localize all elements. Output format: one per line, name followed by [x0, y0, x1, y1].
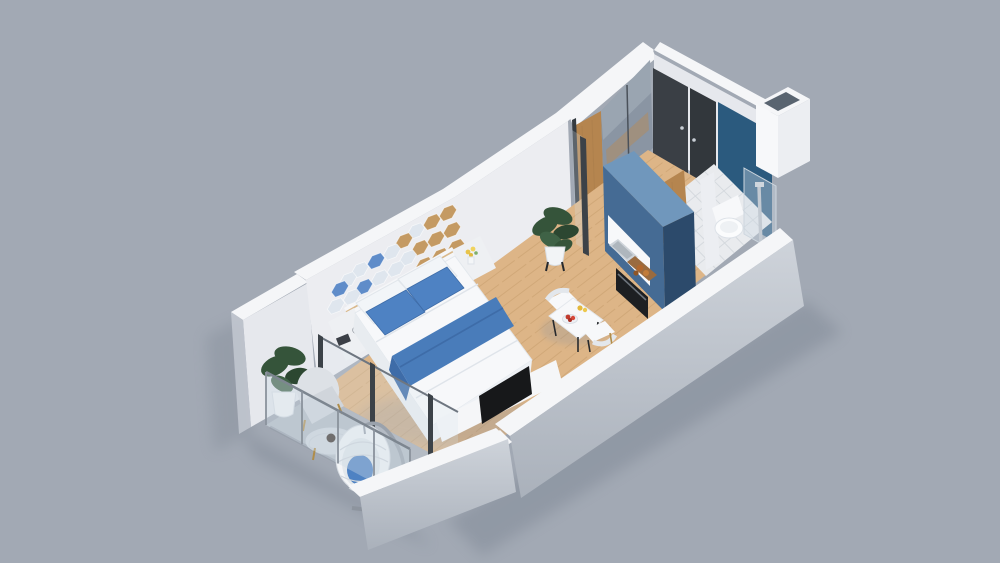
floorplan-render-canvas: [0, 0, 1000, 563]
duct-shaft: [756, 87, 810, 178]
door-handle: [680, 126, 684, 130]
shower-column: [759, 186, 761, 246]
shower-head: [755, 182, 764, 187]
door-handle: [692, 138, 696, 142]
apartment-3d-floorplan: [0, 0, 1000, 563]
